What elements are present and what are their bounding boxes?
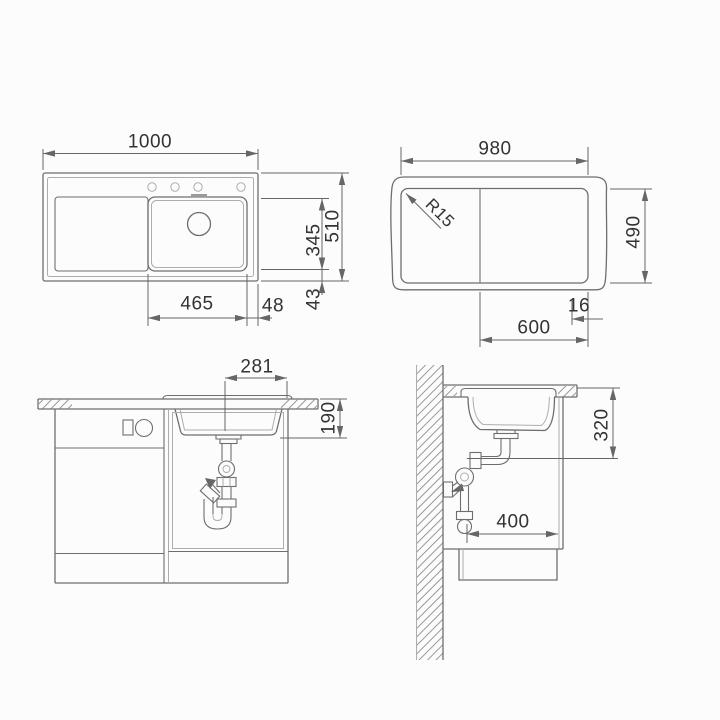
dim-label-cabinet-clearance-width: 400 xyxy=(496,513,529,532)
plinth xyxy=(459,549,557,580)
dim-label-clearance-depth: 320 xyxy=(593,408,612,441)
dim-label-bowl-width: 465 xyxy=(180,295,213,314)
drain-hole xyxy=(188,213,211,236)
dim-label-overall-depth: 510 xyxy=(324,209,343,242)
dim-label-cutout-width: 980 xyxy=(478,140,511,159)
cabinet-knob-circle xyxy=(136,420,153,437)
sink-outline xyxy=(43,173,258,281)
drainboard xyxy=(55,197,148,271)
overflow-slot xyxy=(191,194,207,197)
dim-label-bowl-depth: 345 xyxy=(305,223,324,256)
dim-label-overall-width: 1000 xyxy=(128,133,172,152)
dim-label-drain-offset: 281 xyxy=(240,358,273,377)
dim-label-cutout-depth: 490 xyxy=(625,215,644,248)
worktop-section xyxy=(391,177,607,290)
dim-label-bowl-zone-width: 600 xyxy=(517,319,550,338)
dim-label-bowl-bottom-gap: 43 xyxy=(305,288,324,310)
dim-label-bowl-right-gap: 48 xyxy=(262,297,284,316)
bowl-front-section xyxy=(175,409,282,444)
sink-technical-drawing xyxy=(0,0,720,720)
front-view xyxy=(38,378,347,583)
worktop-front xyxy=(38,396,318,410)
cabinet-handle-square xyxy=(123,420,133,435)
dim-label-edge-gap: 16 xyxy=(568,297,590,316)
tap-holes xyxy=(148,183,245,191)
siphon-trap-front xyxy=(200,444,236,530)
dim-label-bowl-inset-depth: 190 xyxy=(320,401,339,434)
bowl-side-section xyxy=(468,397,555,439)
bowl xyxy=(148,194,247,271)
technical-drawing-sheet: 1000 510 345 43 465 48 980 R15 490 600 1… xyxy=(0,0,720,720)
worktop-side xyxy=(443,385,577,397)
wall-section xyxy=(417,365,444,660)
